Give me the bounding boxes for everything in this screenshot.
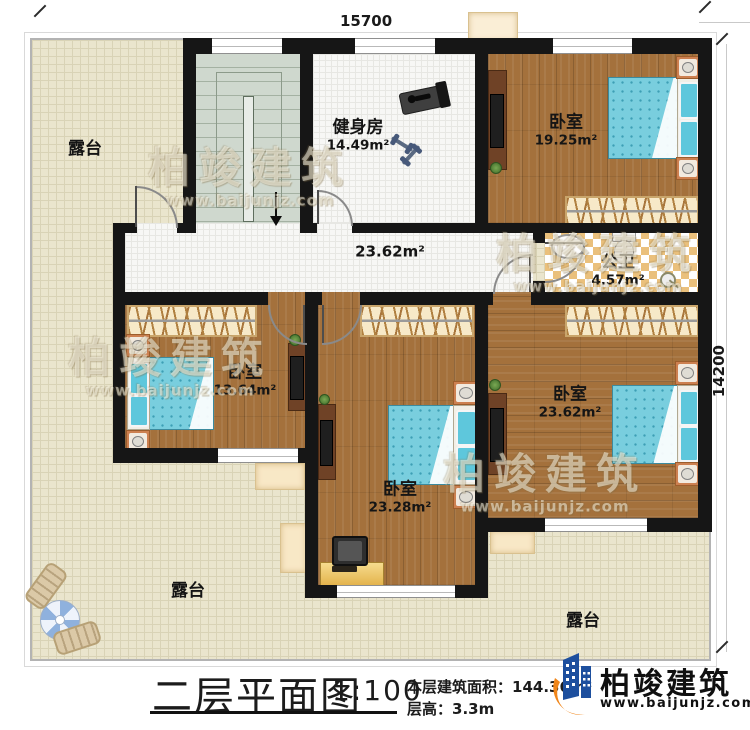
wall (531, 292, 712, 305)
brand-website: www.baijunjz.com (600, 696, 750, 711)
door-leaf (317, 190, 319, 224)
floor-height-value: 3.3m (452, 700, 494, 718)
dimension-tick (699, 1, 712, 14)
plant-icon (490, 162, 502, 174)
pillow (129, 362, 149, 395)
door-leaf (135, 186, 137, 227)
direction-arrow-icon (275, 192, 277, 218)
pillow (679, 426, 699, 462)
terrace-label: 露台 (566, 612, 600, 632)
nightstand (676, 157, 700, 180)
wall (533, 223, 545, 243)
monitor-icon (490, 94, 504, 148)
window (212, 38, 282, 54)
wall (475, 292, 488, 598)
floor-area-label: 本层建筑面积： (407, 678, 512, 696)
wall (113, 223, 125, 463)
room-hallway (125, 223, 533, 292)
wall (300, 54, 313, 223)
room-label-bedroom-middle: 卧室 23.28m² (369, 480, 432, 515)
wall (177, 223, 196, 233)
floor-height-label: 层高： (407, 700, 452, 718)
door-leaf (545, 242, 583, 244)
nightstand (676, 56, 700, 79)
wall (183, 54, 196, 223)
nightstand (675, 462, 700, 486)
dimension-label-top: 15700 (340, 12, 392, 30)
wall (300, 223, 317, 233)
stair-rail (243, 96, 254, 222)
room-label-gym: 健身房 14.49m² (327, 118, 390, 153)
nightstand (126, 334, 150, 357)
window (337, 585, 455, 598)
terrace-label: 露台 (171, 582, 205, 602)
pillow (456, 446, 477, 482)
bed (148, 357, 214, 430)
nightstand (675, 361, 700, 385)
monitor-icon (290, 356, 304, 400)
flower-box (490, 530, 535, 554)
wall (475, 54, 488, 223)
window (218, 448, 298, 463)
bed (388, 405, 455, 485)
pillow (679, 120, 699, 157)
room-label-hallway: 23.62m² (355, 243, 425, 260)
brand-logo-icon (549, 650, 595, 718)
closet (565, 305, 699, 337)
tv-icon (320, 420, 333, 466)
plant-icon (489, 379, 501, 391)
pillow (679, 390, 699, 426)
door-leaf (529, 254, 531, 292)
extension-line (699, 22, 750, 23)
flower-box (280, 523, 307, 573)
terrace-label: 露台 (68, 140, 102, 160)
door-leaf (303, 305, 305, 343)
floor-plan-canvas: 15700 14200 (0, 0, 750, 730)
dimension-tick (34, 5, 47, 18)
direction-arrow-head (270, 216, 282, 226)
room-label-bedroom-top: 卧室 19.25m² (535, 113, 598, 148)
wall (360, 292, 493, 305)
room-label-bedroom-right: 卧室 23.62m² (539, 385, 602, 420)
window (545, 518, 647, 532)
closet (360, 305, 474, 337)
tv-icon (332, 536, 368, 566)
floor-height-text: 层高：3.3m (407, 698, 494, 719)
closet (127, 305, 257, 337)
room-label-bedroom-left: 卧室 13.64m² (214, 363, 277, 398)
window (355, 38, 435, 54)
room-label-bathroom: 公卫 4.57m² (591, 253, 644, 288)
bed (612, 385, 679, 464)
umbrella-center (55, 615, 65, 625)
tv-icon (490, 408, 504, 462)
wall (352, 223, 698, 233)
wall (113, 292, 268, 305)
pillow (679, 82, 699, 119)
flower-box (255, 463, 305, 490)
title-underline (150, 711, 397, 714)
dimension-label-right: 14200 (710, 345, 728, 397)
window (553, 38, 632, 54)
plant-icon (319, 394, 330, 405)
pillow (456, 410, 477, 446)
pillow (129, 395, 149, 427)
door-leaf (322, 305, 324, 343)
bed (608, 77, 679, 159)
